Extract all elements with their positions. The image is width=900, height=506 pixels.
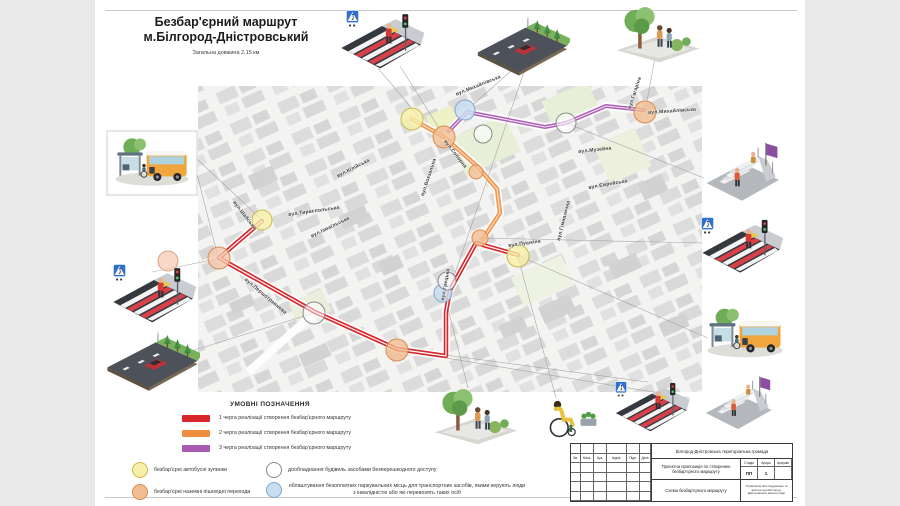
illustration-bus-stop-left-card — [107, 131, 197, 195]
tb-stage-value: ПП — [741, 467, 758, 479]
tb-sheet-label: Аркуш — [758, 459, 775, 466]
building-access-marker — [474, 125, 492, 143]
legend-phase1-row: 1 черга реалізації створення безбар'єрно… — [182, 415, 351, 422]
pedestrian-crossing-sign-icon — [113, 264, 125, 280]
tb-stage-label: Стадія — [741, 459, 758, 466]
page-title-line1: Безбар'єрний маршрут — [138, 15, 314, 30]
map-graphics — [0, 0, 900, 506]
illustration-stairs-ramp-bottom — [706, 376, 772, 429]
legend-title: УМОВНІ ПОЗНАЧЕННЯ — [203, 401, 337, 408]
tb-col-header: Зм. — [571, 454, 581, 464]
pedestrian-crossing-sign-icon — [615, 382, 626, 397]
illustration-stairs-ramp-right — [707, 143, 779, 201]
title-block-scheme: Схема безбар'єрного маршруту — [652, 480, 741, 501]
illustration-parking-street-top — [478, 17, 572, 76]
legend-building-label: дообладнання будівель засобами безперешк… — [288, 467, 436, 474]
legend-phase3-row: 3 черга реалізації створення безбар'єрно… — [182, 445, 351, 452]
crossing-marker — [386, 339, 408, 361]
legend-phase3-swatch — [182, 445, 210, 452]
crossing-marker — [208, 247, 230, 269]
illustration-wheelchair-person — [550, 401, 596, 437]
tb-sheets-label: Аркушів — [775, 459, 792, 466]
page-title-line2: м.Білгород-Дністровський — [138, 30, 314, 45]
building-access-marker — [303, 302, 325, 324]
pedestrian-crossing-sign-icon — [701, 217, 713, 233]
illustration-park-bottom — [435, 389, 518, 444]
drawing-sheet-canvas: Безбар'єрний маршрут м.Білгород-Дністров… — [0, 0, 900, 506]
title-block-community: Білгород-Дністровська територіальна гром… — [652, 444, 792, 459]
legend-phase1-label: 1 черга реалізації створення безбар'єрно… — [219, 415, 351, 422]
tb-col-header: №док. — [607, 454, 627, 464]
legend-parking-row: облаштування безоплатних паркувальних мі… — [266, 482, 526, 498]
legend-building-swatch — [266, 462, 282, 478]
title-block-project: Проектна пропозиція по створенню безбар'… — [652, 459, 741, 479]
tb-sheets-value — [775, 467, 792, 479]
tb-col-header: Кільк. — [581, 454, 594, 464]
title-block-organization: Управління містобудування та архітектури… — [741, 480, 792, 501]
illustration-crosswalk-right — [701, 217, 783, 272]
legend-parking-swatch — [266, 482, 282, 498]
title-block: Зм. Кільк. Арк. №док. Підп. Дата Білгоро… — [570, 443, 793, 502]
tb-col-header: Арк. — [594, 454, 607, 464]
parking-marker — [455, 100, 475, 120]
legend-phase3-label: 3 черга реалізації створення безбар'єрно… — [219, 445, 351, 452]
crossing-marker — [158, 251, 178, 271]
route-length-subtitle: Загальна довжина 2,15 км — [138, 50, 314, 56]
tb-sheet-value: 1 — [758, 467, 775, 479]
illustration-crosswalk-top — [341, 10, 424, 68]
tb-col-header: Дата — [640, 454, 651, 464]
legend-building-row: дообладнання будівель засобами безперешк… — [266, 462, 516, 478]
tb-col-header: Підп. — [627, 454, 640, 464]
illustration-bus-stop-right — [707, 309, 782, 358]
legend-parking-label: облаштування безоплатних паркувальних мі… — [288, 483, 526, 496]
crossing-marker — [472, 230, 488, 246]
legend-phase2-label: 2 черга реалізації створення безбар'єрно… — [219, 430, 351, 437]
legend-busstop-label-text: безбар'єрні автобусні зупинки — [154, 467, 227, 474]
bus-stop-marker — [401, 108, 423, 130]
illustration-parking-street-left — [107, 331, 202, 390]
title-block-revision-grid: Зм. Кільк. Арк. №док. Підп. Дата — [571, 444, 652, 501]
legend-phase2-swatch — [182, 430, 210, 437]
legend-crossing-swatch — [132, 484, 148, 500]
building-access-marker — [556, 113, 576, 133]
pedestrian-crossing-sign-icon — [346, 10, 358, 26]
crossing-marker — [469, 165, 483, 179]
page-title: Безбар'єрний маршрут м.Білгород-Дністров… — [138, 15, 314, 46]
illustration-park-top-right — [617, 7, 700, 62]
legend-crossing-label: безбар'єрні наземні пішохідні переходи — [154, 489, 250, 496]
illustration-crosswalk-left — [113, 264, 196, 322]
legend-busstop-swatch — [132, 462, 148, 478]
legend-phase2-row: 2 черга реалізації створення безбар'єрно… — [182, 430, 351, 437]
legend-phase1-swatch — [182, 415, 210, 422]
